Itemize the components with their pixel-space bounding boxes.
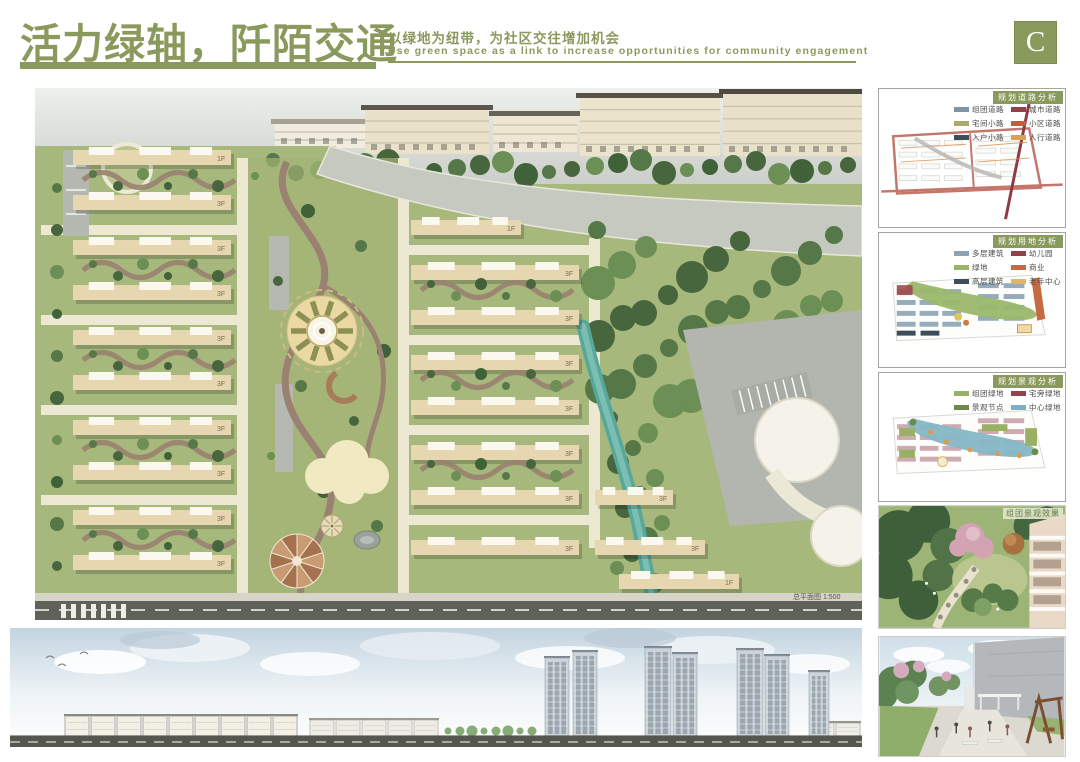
- svg-text:3F: 3F: [565, 496, 573, 503]
- pond-inner: [360, 536, 374, 544]
- masterplan-caption: 总平面图 1:500: [793, 592, 841, 601]
- card-title-tag: 规划用地分析: [993, 235, 1063, 248]
- subtitle-underline: [388, 61, 856, 63]
- legend-label: 老年中心: [1029, 276, 1061, 287]
- analysis-card-roads: 规划道路分析 组团道路 宅间小路 入户小路: [878, 88, 1066, 228]
- legend-label: 中心绿地: [1029, 402, 1061, 413]
- legend-item: 绿地: [954, 262, 1004, 273]
- svg-text:3F: 3F: [217, 426, 225, 433]
- legend-label: 多层建筑: [972, 248, 1004, 259]
- legend-item: 中心绿地: [1011, 402, 1061, 413]
- landuse-legend: 多层建筑 绿地 高层建筑 幼儿园: [954, 248, 1061, 287]
- legend-label: 幼儿园: [1029, 248, 1053, 259]
- legend-label: 宅旁绿地: [1029, 388, 1061, 399]
- photo-label: 组团景观效果: [1003, 508, 1063, 519]
- legend-swatch: [954, 265, 969, 270]
- legend-swatch: [954, 107, 969, 112]
- legend-swatch: [1011, 107, 1026, 112]
- legend-label: 绿地: [972, 262, 988, 273]
- svg-text:3F: 3F: [217, 516, 225, 523]
- legend-label: 宅间小路: [972, 118, 1004, 129]
- legend-swatch: [954, 121, 969, 126]
- svg-text:3F: 3F: [217, 561, 225, 568]
- svg-text:3F: 3F: [565, 271, 573, 278]
- subtitle-en: Use green space as a link to increase op…: [388, 45, 868, 57]
- legend-swatch: [954, 391, 969, 396]
- svg-text:3F: 3F: [565, 451, 573, 458]
- plaza-render: [879, 637, 1065, 756]
- svg-text:3F: 3F: [691, 546, 699, 553]
- street-elevation-drawing: [10, 628, 862, 757]
- svg-text:3F: 3F: [565, 361, 573, 368]
- landscape-legend: 组团绿地 景观节点 宅旁绿地 中心绿地: [954, 388, 1061, 413]
- roads-legend: 组团道路 宅间小路 入户小路 城市道路: [954, 104, 1061, 143]
- circular-plaza-large: [755, 398, 839, 482]
- svg-text:3F: 3F: [659, 496, 667, 503]
- legend-swatch: [1011, 135, 1026, 140]
- legend-swatch: [1011, 405, 1026, 410]
- legend-item: 人行道路: [1011, 132, 1061, 143]
- svg-text:3F: 3F: [217, 201, 225, 208]
- legend-swatch: [1011, 251, 1026, 256]
- legend-label: 入户小路: [972, 132, 1004, 143]
- fan-plaza: [270, 534, 324, 588]
- legend-item: 组团绿地: [954, 388, 1004, 399]
- legend-swatch: [1011, 265, 1026, 270]
- subtitle-cn: 以绿地为纽带，为社区交往增加机会: [388, 27, 620, 47]
- legend-swatch: [1011, 391, 1026, 396]
- analysis-card-landscape: 规划景观分析 组团绿地 景观节点 宅旁绿地: [878, 372, 1066, 502]
- legend-swatch: [1011, 279, 1026, 284]
- svg-text:1F: 1F: [507, 226, 515, 233]
- presentation-board: 活力绿轴，阡陌交通 以绿地为纽带，为社区交往增加机会 Use green spa…: [0, 0, 1080, 762]
- analysis-card-landuse: 规划用地分析 多层建筑 绿地 高层建筑: [878, 232, 1066, 368]
- svg-text:3F: 3F: [217, 291, 225, 298]
- legend-item: 宅间小路: [954, 118, 1004, 129]
- legend-item: 小区道路: [1011, 118, 1061, 129]
- legend-item: 高层建筑: [954, 276, 1004, 287]
- legend-item: 景观节点: [954, 402, 1004, 413]
- render-photo-courtyard: 组团景观效果: [878, 505, 1066, 629]
- svg-text:3F: 3F: [565, 316, 573, 323]
- sheet-letter-badge: C: [1014, 21, 1057, 64]
- legend-label: 城市道路: [1029, 104, 1061, 115]
- sidewalk: [35, 593, 862, 601]
- tower-elevations: [544, 646, 830, 736]
- street-elevation: [10, 628, 862, 757]
- legend-item: 组团道路: [954, 104, 1004, 115]
- legend-label: 小区道路: [1029, 118, 1061, 129]
- legend-item: 幼儿园: [1011, 248, 1061, 259]
- legend-item: 商业: [1011, 262, 1061, 273]
- legend-item: 老年中心: [1011, 276, 1061, 287]
- svg-text:1F: 1F: [725, 580, 733, 587]
- legend-item: 多层建筑: [954, 248, 1004, 259]
- legend-swatch: [954, 135, 969, 140]
- card-title-tag: 规划道路分析: [993, 91, 1063, 104]
- legend-item: 宅旁绿地: [1011, 388, 1061, 399]
- svg-text:3F: 3F: [565, 546, 573, 553]
- card-title-tag: 规划景观分析: [993, 375, 1063, 388]
- title-underline: [20, 62, 376, 69]
- legend-item: 入户小路: [954, 132, 1004, 143]
- legend-swatch: [954, 251, 969, 256]
- svg-text:3F: 3F: [217, 336, 225, 343]
- compass-plaza: [321, 515, 343, 537]
- legend-swatch: [954, 405, 969, 410]
- legend-label: 高层建筑: [972, 276, 1004, 287]
- svg-text:3F: 3F: [217, 246, 225, 253]
- legend-swatch: [954, 279, 969, 284]
- svg-text:1F: 1F: [217, 156, 225, 163]
- legend-item: 城市道路: [1011, 104, 1061, 115]
- courtyard-render: [879, 506, 1065, 628]
- legend-swatch: [1011, 121, 1026, 126]
- legend-label: 人行道路: [1029, 132, 1061, 143]
- page-title: 活力绿轴，阡陌交通: [20, 10, 398, 70]
- legend-label: 组团绿地: [972, 388, 1004, 399]
- axis-slab-1: [269, 236, 289, 310]
- legend-label: 景观节点: [972, 402, 1004, 413]
- svg-text:3F: 3F: [217, 471, 225, 478]
- legend-label: 组团道路: [972, 104, 1004, 115]
- svg-text:3F: 3F: [217, 381, 225, 388]
- circular-plaza-small: [811, 506, 862, 566]
- legend-label: 商业: [1029, 262, 1045, 273]
- masterplan-drawing: 1F3F3F3F3F3F3F3F3F3F1F3F3F3F3F3F3F3F3F3F…: [35, 88, 862, 620]
- masterplan: 1F3F3F3F3F3F3F3F3F3F1F3F3F3F3F3F3F3F3F3F…: [35, 88, 862, 620]
- render-photo-plaza: [878, 636, 1066, 757]
- svg-text:3F: 3F: [565, 406, 573, 413]
